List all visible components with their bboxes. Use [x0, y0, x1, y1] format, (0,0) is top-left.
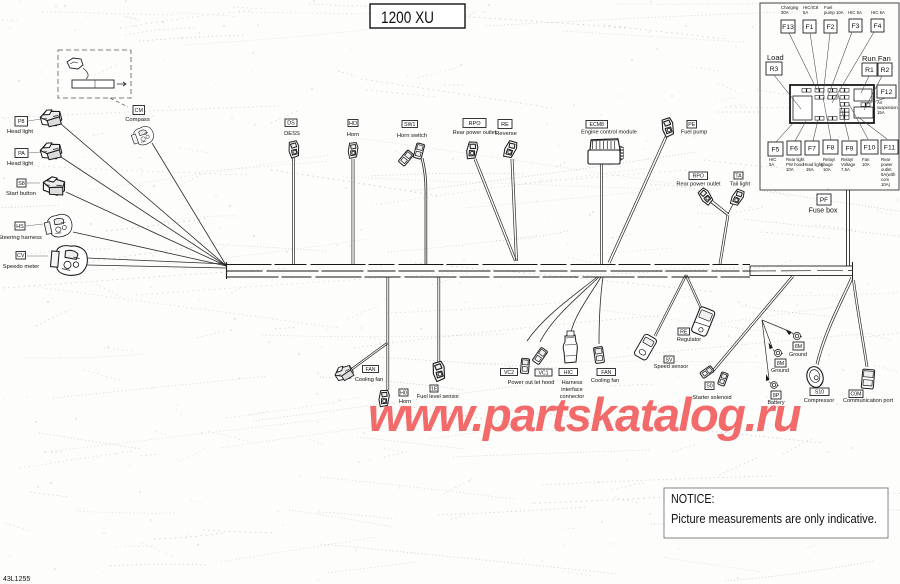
svg-text:www.partskatalog.ru: www.partskatalog.ru: [368, 388, 801, 441]
svg-text:SV: SV: [666, 357, 673, 363]
svg-text:30A: 30A: [781, 10, 789, 15]
svg-text:F13: F13: [782, 24, 794, 31]
svg-text:Speedo meter: Speedo meter: [3, 264, 39, 270]
svg-text:15A: 15A: [877, 110, 885, 115]
svg-text:Steering harness: Steering harness: [0, 235, 42, 241]
svg-text:R3: R3: [770, 66, 779, 73]
svg-text:8M: 8M: [777, 361, 784, 367]
svg-text:F5: F5: [772, 146, 780, 153]
svg-text:Picture measurements are only: Picture measurements are only indicative…: [671, 511, 877, 526]
svg-text:CV: CV: [17, 253, 25, 259]
svg-text:HO: HO: [349, 121, 357, 127]
svg-text:Cooling fan: Cooling fan: [355, 377, 383, 383]
svg-text:Compressor: Compressor: [804, 398, 835, 404]
svg-text:P8: P8: [18, 119, 25, 125]
svg-text:R1: R1: [865, 67, 874, 74]
svg-text:F3: F3: [852, 23, 860, 30]
svg-text:Horn switch: Horn switch: [397, 133, 427, 139]
svg-text:Fuel pump: Fuel pump: [681, 130, 707, 136]
svg-text:VC1: VC1: [538, 370, 548, 376]
svg-text:F7: F7: [808, 145, 816, 152]
svg-text:43L1255: 43L1255: [3, 576, 30, 583]
svg-text:HIC: HIC: [564, 370, 573, 376]
svg-text:Communication port: Communication port: [843, 398, 894, 404]
svg-text:1200 XU: 1200 XU: [381, 8, 434, 27]
svg-text:F10: F10: [864, 144, 876, 151]
svg-text:RE: RE: [680, 329, 688, 335]
svg-text:Run Fan: Run Fan: [862, 54, 891, 63]
svg-text:RE: RE: [501, 122, 509, 128]
svg-text:TA: TA: [735, 173, 742, 179]
svg-text:SW1: SW1: [404, 122, 415, 128]
svg-text:Rear power outlet: Rear power outlet: [676, 182, 721, 188]
svg-text:F9: F9: [846, 145, 854, 152]
svg-text:5A: 5A: [769, 162, 774, 167]
svg-text:Ground: Ground: [789, 352, 807, 358]
svg-text:15A: 15A: [806, 167, 814, 172]
svg-text:F6: F6: [790, 145, 798, 152]
svg-text:FAN: FAN: [601, 370, 611, 376]
svg-text:F2: F2: [827, 24, 835, 31]
svg-text:8M: 8M: [795, 344, 802, 350]
svg-text:S10: S10: [815, 390, 824, 396]
svg-text:Start button: Start button: [6, 191, 36, 197]
svg-text:F4: F4: [874, 23, 882, 30]
svg-text:ECM8: ECM8: [590, 122, 605, 128]
svg-text:F12: F12: [881, 89, 893, 96]
svg-text:Regulator: Regulator: [677, 337, 701, 343]
svg-text:DESS: DESS: [284, 131, 300, 137]
svg-text:Harness: Harness: [562, 380, 583, 386]
svg-text:5A: 5A: [803, 10, 808, 15]
svg-text:Cooling fan: Cooling fan: [591, 378, 619, 384]
svg-text:CM: CM: [135, 108, 144, 114]
svg-text:F8: F8: [827, 144, 835, 151]
svg-text:R2: R2: [881, 67, 890, 74]
svg-text:FAN: FAN: [365, 367, 375, 373]
svg-text:Load: Load: [767, 53, 784, 62]
svg-text:Speed sensor: Speed sensor: [654, 364, 689, 370]
svg-text:C0M: C0M: [851, 392, 862, 398]
svg-text:PF: PF: [820, 197, 828, 204]
svg-text:F11: F11: [884, 144, 895, 151]
svg-text:HIC 5A: HIC 5A: [848, 10, 862, 15]
svg-text:NOTICE:: NOTICE:: [671, 491, 715, 506]
svg-text:10A: 10A: [862, 162, 870, 167]
svg-text:HS: HS: [16, 224, 24, 230]
svg-text:Head light: Head light: [7, 161, 33, 167]
svg-text:HIC 5A: HIC 5A: [871, 10, 885, 15]
svg-text:Power out let hood: Power out let hood: [508, 380, 555, 386]
svg-text:Ground: Ground: [771, 368, 789, 374]
svg-text:pump 10A: pump 10A: [824, 10, 844, 15]
svg-text:S8: S8: [18, 181, 25, 187]
svg-text:F1: F1: [806, 24, 814, 31]
svg-text:10A: 10A: [786, 167, 794, 172]
svg-text:7,5A: 7,5A: [841, 167, 850, 172]
svg-text:10A): 10A): [881, 182, 891, 187]
svg-text:Tail light: Tail light: [730, 182, 751, 188]
svg-text:Rear power outlet: Rear power outlet: [453, 130, 497, 136]
svg-text:Reverse: Reverse: [495, 131, 517, 137]
svg-text:Engine control module: Engine control module: [581, 130, 637, 136]
svg-text:RPO: RPO: [693, 174, 704, 180]
svg-text:VC2: VC2: [504, 370, 514, 376]
svg-text:DS: DS: [287, 121, 295, 127]
svg-text:PA: PA: [18, 151, 25, 157]
svg-text:10A: 10A: [823, 167, 831, 172]
svg-text:Compass: Compass: [125, 117, 150, 123]
svg-text:Horn: Horn: [347, 132, 360, 138]
svg-text:Head light: Head light: [7, 129, 33, 135]
svg-text:Fuse box: Fuse box: [809, 208, 838, 215]
svg-text:RPO: RPO: [468, 121, 481, 127]
svg-text:PE: PE: [688, 122, 695, 128]
